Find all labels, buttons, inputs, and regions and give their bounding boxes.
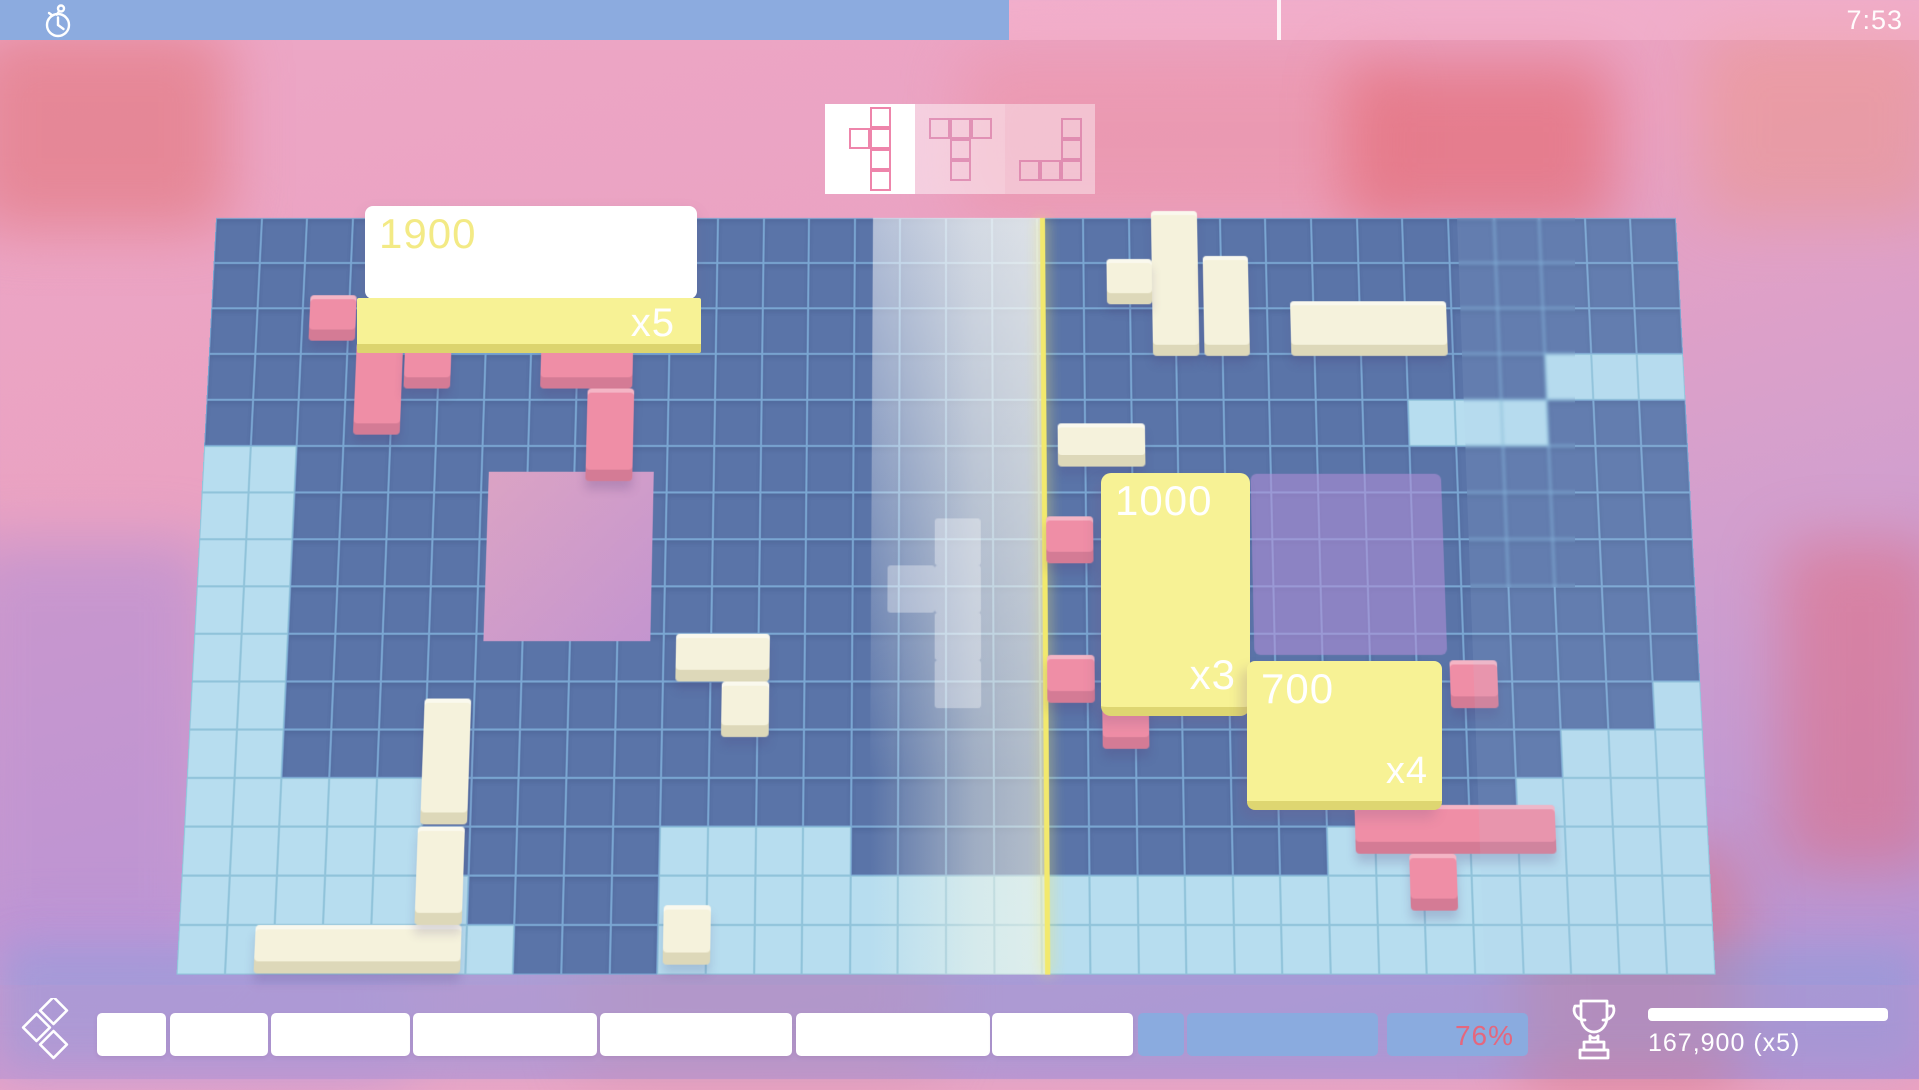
board-cell[interactable] xyxy=(615,681,663,729)
board-cell[interactable] xyxy=(519,730,568,778)
board-cell[interactable] xyxy=(807,400,854,446)
piece-block-pink[interactable] xyxy=(353,342,403,434)
board-cell-light[interactable] xyxy=(229,827,279,876)
board-cell-light[interactable] xyxy=(227,876,277,925)
board-cell[interactable] xyxy=(380,634,429,682)
board-cell[interactable] xyxy=(762,263,808,308)
board-cell-light[interactable] xyxy=(1233,876,1282,925)
board-cell[interactable] xyxy=(1232,827,1281,876)
board-cell[interactable] xyxy=(339,492,388,539)
board-cell[interactable] xyxy=(286,634,335,682)
board-cell[interactable] xyxy=(468,827,517,876)
bottom-bar: 76% 167,900 (x5) xyxy=(0,985,1919,1079)
board-cell[interactable] xyxy=(1088,778,1136,827)
board-cell[interactable] xyxy=(288,586,337,633)
queue-piece-cell xyxy=(929,118,950,139)
board-cell-light[interactable] xyxy=(246,492,295,539)
board-cell[interactable] xyxy=(1268,354,1315,400)
board-cell[interactable] xyxy=(475,634,524,682)
board-cell-light[interactable] xyxy=(1280,876,1329,925)
board-cell-light[interactable] xyxy=(323,876,373,925)
board-cell-light[interactable] xyxy=(1328,876,1377,925)
board-cell[interactable] xyxy=(709,730,757,778)
board-cell[interactable] xyxy=(482,400,530,446)
board-cell[interactable] xyxy=(429,586,478,633)
board-cell-light[interactable] xyxy=(1186,925,1235,975)
board-cell-light[interactable] xyxy=(373,827,423,876)
board-cell[interactable] xyxy=(436,400,484,446)
board-cell[interactable] xyxy=(807,354,854,400)
board-cell[interactable] xyxy=(293,492,342,539)
board-cell-light[interactable] xyxy=(659,827,708,876)
board-cell[interactable] xyxy=(715,354,762,400)
board-cell-light[interactable] xyxy=(279,778,329,827)
queue-piece-cell xyxy=(1061,160,1082,181)
board-cell[interactable] xyxy=(470,778,519,827)
board-cell[interactable] xyxy=(1136,827,1184,876)
board-cell[interactable] xyxy=(804,730,852,778)
board-cell-light[interactable] xyxy=(248,446,297,492)
board-cell[interactable] xyxy=(337,539,386,586)
score-popup-value: 1000 xyxy=(1115,477,1212,525)
board-cell[interactable] xyxy=(805,634,852,682)
board-cell[interactable] xyxy=(803,778,851,827)
board-cell[interactable] xyxy=(758,586,805,633)
board-cell[interactable] xyxy=(1182,730,1230,778)
board-cell-light[interactable] xyxy=(176,925,227,975)
ghost-piece-cell xyxy=(934,660,981,708)
board-cell[interactable] xyxy=(1402,218,1449,263)
board-cell[interactable] xyxy=(712,539,759,586)
multiplier-label: x5 xyxy=(631,301,675,346)
zone-overlay xyxy=(1250,474,1447,655)
board-cell[interactable] xyxy=(804,681,852,729)
board-cell[interactable] xyxy=(1136,778,1184,827)
board-cell[interactable] xyxy=(204,400,253,446)
board-cell[interactable] xyxy=(259,218,307,263)
board-cell[interactable] xyxy=(1311,218,1358,263)
board-cell[interactable] xyxy=(1222,354,1269,400)
timer-fill xyxy=(0,0,1009,40)
board-cell[interactable] xyxy=(214,218,262,263)
board-cell[interactable] xyxy=(806,539,853,586)
board-cell[interactable] xyxy=(808,308,854,354)
queue-piece-cell xyxy=(1019,160,1040,181)
progress-segment-filled xyxy=(796,1013,990,1056)
board-cell[interactable] xyxy=(716,263,763,308)
board-cell[interactable] xyxy=(282,730,332,778)
piece-block-cream[interactable] xyxy=(1057,423,1146,467)
board-cell-light[interactable] xyxy=(755,827,803,876)
queue-piece-cell xyxy=(950,160,971,181)
board-cell[interactable] xyxy=(386,492,434,539)
ghost-piece-cell xyxy=(934,565,981,612)
board-cell-light[interactable] xyxy=(187,730,237,778)
board-cell-light[interactable] xyxy=(241,586,290,633)
board-cell[interactable] xyxy=(257,263,305,308)
queue-piece-cell xyxy=(1061,139,1082,160)
board-cell[interactable] xyxy=(1089,827,1137,876)
board-cell[interactable] xyxy=(467,876,516,925)
board-cell[interactable] xyxy=(253,354,301,400)
board-cell[interactable] xyxy=(517,778,566,827)
board-cell[interactable] xyxy=(1279,827,1328,876)
timer-marker xyxy=(1277,0,1281,40)
piece-block-cream[interactable] xyxy=(1290,301,1448,356)
piece-block-cream[interactable] xyxy=(662,905,711,964)
board-cell[interactable] xyxy=(209,308,257,354)
board-cell-light[interactable] xyxy=(275,876,325,925)
board-cell[interactable] xyxy=(665,539,713,586)
board-cell[interactable] xyxy=(561,925,610,975)
board-cell[interactable] xyxy=(808,263,854,308)
board-cell-light[interactable] xyxy=(1089,876,1137,925)
board-cell-light[interactable] xyxy=(184,778,234,827)
board-cell[interactable] xyxy=(207,354,255,400)
bg-blob xyxy=(0,30,230,230)
stopwatch-icon xyxy=(42,4,76,40)
board-cell-light[interactable] xyxy=(1425,925,1475,975)
time-remaining: 7:53 xyxy=(1846,5,1903,36)
board-cell[interactable] xyxy=(1315,354,1362,400)
depth-blur-overlay xyxy=(1457,218,1716,975)
board-cell[interactable] xyxy=(377,730,426,778)
board-cell[interactable] xyxy=(299,354,347,400)
queue-slot-next-2[interactable] xyxy=(1005,104,1095,194)
board-cell-light[interactable] xyxy=(706,925,755,975)
board-cell-light[interactable] xyxy=(1090,925,1139,975)
piece-block-pink[interactable] xyxy=(1046,516,1093,563)
board-cell-light[interactable] xyxy=(182,827,232,876)
trophy-icon xyxy=(1566,996,1622,1064)
piece-block-pink[interactable] xyxy=(1047,655,1095,703)
board-cell[interactable] xyxy=(1407,354,1455,400)
board-cell[interactable] xyxy=(378,681,427,729)
board-cell-light[interactable] xyxy=(465,925,515,975)
board-cell[interactable] xyxy=(1223,400,1270,446)
board-cell-light[interactable] xyxy=(802,925,850,975)
diamond-chain-icon xyxy=(18,998,84,1068)
board-cell-light[interactable] xyxy=(1185,876,1234,925)
score-progress-bar xyxy=(1648,1008,1888,1021)
queue-piece-cell xyxy=(1061,118,1082,139)
board-cell[interactable] xyxy=(610,876,659,925)
board-cell-light[interactable] xyxy=(202,446,251,492)
board-cell[interactable] xyxy=(1361,354,1409,400)
score-popup-1000: 1000 x3 xyxy=(1101,473,1250,716)
piece-queue xyxy=(825,104,1095,194)
timer-bar: 7:53 xyxy=(0,0,1919,40)
board-cell[interactable] xyxy=(756,778,804,827)
queue-piece-cell xyxy=(950,139,971,160)
board-cell[interactable] xyxy=(297,400,345,446)
board-cell[interactable] xyxy=(759,539,806,586)
board-cell[interactable] xyxy=(384,539,433,586)
board-cell[interactable] xyxy=(473,681,522,729)
board-cell[interactable] xyxy=(667,446,714,492)
board-cell-light[interactable] xyxy=(244,539,293,586)
ghost-piece-cell xyxy=(934,612,981,660)
board-cell[interactable] xyxy=(708,778,756,827)
ghost-piece-cell xyxy=(934,518,981,565)
progress-segment-filled xyxy=(271,1013,410,1056)
board-cell-light[interactable] xyxy=(1282,925,1331,975)
board-cell[interactable] xyxy=(388,446,436,492)
board-cell-light[interactable] xyxy=(327,778,377,827)
queue-piece-cell xyxy=(870,149,891,170)
board-cell[interactable] xyxy=(284,681,333,729)
board-cell[interactable] xyxy=(471,730,520,778)
board-cell[interactable] xyxy=(513,925,562,975)
board-cell[interactable] xyxy=(211,263,259,308)
board-cell-light[interactable] xyxy=(706,876,755,925)
board-cell[interactable] xyxy=(613,778,662,827)
board-cell-light[interactable] xyxy=(189,681,239,729)
piece-block-cream[interactable] xyxy=(420,698,472,824)
score-popup-700: 700 x4 xyxy=(1247,661,1442,810)
board-cell[interactable] xyxy=(805,586,852,633)
progress-segment-empty xyxy=(1138,1013,1184,1056)
board-cell-light[interactable] xyxy=(237,681,286,729)
board-cell[interactable] xyxy=(609,925,658,975)
board-cell-light[interactable] xyxy=(194,586,243,633)
board-cell-light[interactable] xyxy=(1234,925,1283,975)
board-cell-light[interactable] xyxy=(199,492,248,539)
queue-slot-current[interactable] xyxy=(825,104,915,194)
board-cell[interactable] xyxy=(716,308,763,354)
board-hole xyxy=(483,471,653,640)
board-cell[interactable] xyxy=(668,400,715,446)
piece-block-cream[interactable] xyxy=(1106,258,1152,303)
piece-block-pink[interactable] xyxy=(309,295,357,341)
queue-piece-cell xyxy=(971,118,992,139)
board-cell-light[interactable] xyxy=(1377,925,1427,975)
board-cell[interactable] xyxy=(761,354,808,400)
board-cell[interactable] xyxy=(759,492,806,539)
progress-percent: 76% xyxy=(1455,1020,1514,1052)
multiplier-label: x3 xyxy=(1190,651,1236,699)
board-cell-light[interactable] xyxy=(1138,925,1187,975)
board-cell[interactable] xyxy=(341,446,389,492)
board-cell[interactable] xyxy=(713,492,760,539)
multiplier-label: x4 xyxy=(1386,750,1428,793)
board-cell[interactable] xyxy=(563,876,612,925)
progress-segment-empty xyxy=(1187,1013,1378,1056)
board-cell[interactable] xyxy=(1130,354,1177,400)
board-cell[interactable] xyxy=(515,876,564,925)
board-cell[interactable] xyxy=(522,634,570,682)
board-cell[interactable] xyxy=(427,634,476,682)
board-cell-light[interactable] xyxy=(277,827,327,876)
piece-block-cream[interactable] xyxy=(721,681,769,736)
board-cell-light[interactable] xyxy=(754,925,803,975)
board-cell[interactable] xyxy=(614,730,662,778)
board-cell[interactable] xyxy=(806,492,853,539)
board-cell[interactable] xyxy=(434,446,482,492)
board-cell[interactable] xyxy=(568,681,616,729)
piece-block-cream[interactable] xyxy=(414,827,465,925)
board-cell-light[interactable] xyxy=(239,634,288,682)
board-cell[interactable] xyxy=(762,308,809,354)
queue-piece-cell xyxy=(950,118,971,139)
board-cell[interactable] xyxy=(290,539,339,586)
board-cell[interactable] xyxy=(664,586,712,633)
board-cell[interactable] xyxy=(329,730,378,778)
board-cell-light[interactable] xyxy=(1137,876,1186,925)
board-cell-light[interactable] xyxy=(1408,400,1456,446)
board-cell[interactable] xyxy=(520,681,569,729)
board-cell-light[interactable] xyxy=(802,876,850,925)
board-cell[interactable] xyxy=(1270,400,1317,446)
board-cell[interactable] xyxy=(484,354,532,400)
board-cell[interactable] xyxy=(761,400,808,446)
board-cell[interactable] xyxy=(760,446,807,492)
board-cell-light[interactable] xyxy=(192,634,241,682)
queue-slot-next-1[interactable] xyxy=(915,104,1005,194)
score-popup-value: 1900 xyxy=(379,210,476,258)
board-cell[interactable] xyxy=(382,586,431,633)
board-cell[interactable] xyxy=(717,218,763,263)
piece-block-cream[interactable] xyxy=(675,634,770,682)
board-cell[interactable] xyxy=(669,354,716,400)
board-cell[interactable] xyxy=(763,218,809,263)
bg-blob xyxy=(1780,540,1919,870)
board-cell[interactable] xyxy=(806,446,853,492)
queue-piece-cell xyxy=(870,107,891,128)
board-cell[interactable] xyxy=(1176,354,1223,400)
board-cell[interactable] xyxy=(1316,400,1364,446)
score-popup-1900: 1900 xyxy=(365,206,697,299)
queue-piece-cell xyxy=(870,128,891,149)
board-cell-light[interactable] xyxy=(803,827,851,876)
score-label: 167,900 (x5) xyxy=(1648,1029,1800,1058)
board-cell[interactable] xyxy=(566,730,615,778)
line-clear-banner: x5 xyxy=(357,298,701,353)
board-cell[interactable] xyxy=(255,308,303,354)
board-cell-light[interactable] xyxy=(375,778,424,827)
board-cell[interactable] xyxy=(331,681,380,729)
board-cell[interactable] xyxy=(756,730,804,778)
piece-block-cream[interactable] xyxy=(1151,211,1199,356)
board-cell-light[interactable] xyxy=(1329,925,1378,975)
board-cell[interactable] xyxy=(1084,354,1131,400)
board-cell[interactable] xyxy=(711,586,759,633)
board-cell[interactable] xyxy=(661,730,709,778)
bg-blob xyxy=(1345,60,1615,230)
piece-block-cream[interactable] xyxy=(253,925,461,974)
board-cell[interactable] xyxy=(1184,827,1233,876)
queue-piece-cell xyxy=(849,128,870,149)
board-cell[interactable] xyxy=(1177,400,1224,446)
queue-piece-cell xyxy=(870,170,891,191)
board-cell-light[interactable] xyxy=(234,730,284,778)
board-cell[interactable] xyxy=(295,446,343,492)
board-cell[interactable] xyxy=(666,492,713,539)
piece-block-pink[interactable] xyxy=(1409,854,1459,911)
board-cell[interactable] xyxy=(565,778,614,827)
board-cell[interactable] xyxy=(1265,218,1312,263)
board-cell[interactable] xyxy=(612,827,661,876)
board-cell[interactable] xyxy=(305,218,353,263)
board-cell[interactable] xyxy=(333,634,382,682)
progress-segment-filled xyxy=(992,1013,1133,1056)
board-cell[interactable] xyxy=(662,681,710,729)
bg-blob xyxy=(0,540,210,970)
board-cell[interactable] xyxy=(433,492,481,539)
board-cell[interactable] xyxy=(1083,218,1129,263)
board-cell-light[interactable] xyxy=(325,827,375,876)
board-cell[interactable] xyxy=(516,827,565,876)
board-cell[interactable] xyxy=(616,634,664,682)
progress-segment-filled xyxy=(170,1013,268,1056)
progress-segment-filled xyxy=(413,1013,597,1056)
board-cell[interactable] xyxy=(1362,400,1410,446)
board-cell-light[interactable] xyxy=(754,876,802,925)
progress-segment-empty: 76% xyxy=(1387,1013,1528,1056)
board-cell-light[interactable] xyxy=(707,827,755,876)
piece-block-cream[interactable] xyxy=(1202,256,1250,356)
board-cell[interactable] xyxy=(431,539,479,586)
bg-blob xyxy=(1700,30,1919,220)
board-cell[interactable] xyxy=(1357,218,1404,263)
queue-piece-cell xyxy=(1040,160,1061,181)
board-cell[interactable] xyxy=(335,586,384,633)
board-cell-light[interactable] xyxy=(179,876,229,925)
board-cell[interactable] xyxy=(714,400,761,446)
board-cell[interactable] xyxy=(564,827,613,876)
board-cell[interactable] xyxy=(713,446,760,492)
board-cell-light[interactable] xyxy=(197,539,246,586)
board-cell[interactable] xyxy=(660,778,708,827)
board-cell[interactable] xyxy=(1183,778,1231,827)
score-popup-value: 700 xyxy=(1261,665,1334,713)
board-cell[interactable] xyxy=(1084,308,1131,354)
progress-segment-filled xyxy=(97,1013,166,1056)
ghost-piece-cell xyxy=(887,565,934,612)
board-cell[interactable] xyxy=(809,218,855,263)
board-cell[interactable] xyxy=(529,400,577,446)
board-cell-light[interactable] xyxy=(371,876,421,925)
board-cell[interactable] xyxy=(250,400,298,446)
piece-block-pink[interactable] xyxy=(586,388,635,481)
progress-segment-filled xyxy=(600,1013,792,1056)
board-cell[interactable] xyxy=(569,634,617,682)
board-cell-light[interactable] xyxy=(232,778,282,827)
